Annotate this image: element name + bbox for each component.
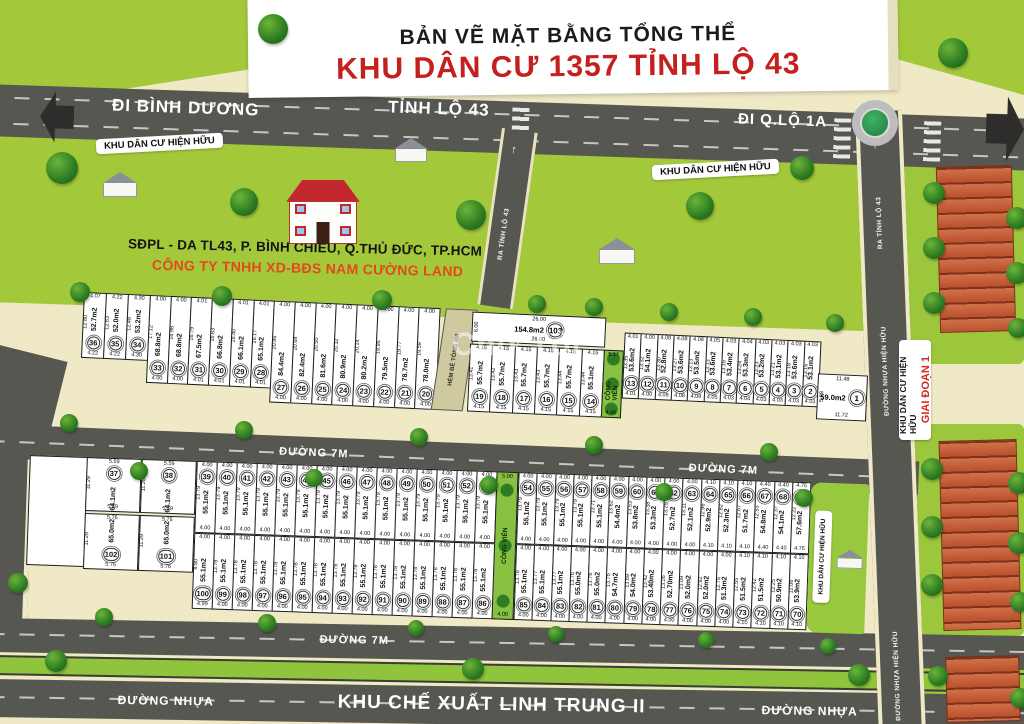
plot-dim-width: 4.00 (335, 540, 354, 546)
plot-dim-width: 4.10 (754, 554, 771, 560)
plot-area: 52.0m2 (703, 576, 711, 600)
plot-area: 55.1m2 (359, 564, 367, 588)
plot-number: 56 (557, 482, 570, 495)
plot-dim-depth: 13.79 (216, 486, 222, 500)
plot-row: 4.0113.3553.6m2134.014.0013.3254.1m2124.… (623, 333, 822, 408)
house-icon (392, 138, 430, 162)
plot-area: 55.1m2 (220, 559, 228, 583)
plot-dim-width: 4.00 (417, 471, 436, 477)
plot-number: 85 (517, 598, 530, 611)
plot-dim-depth: 13.42 (492, 368, 498, 382)
plot-dim-width-bottom: 4.08 (655, 392, 671, 398)
plot-dim-width-bottom: 4.00 (569, 614, 586, 620)
plot-number: 26 (295, 382, 309, 396)
plot-number: 17 (517, 392, 531, 406)
plot-area: 80.2m2 (361, 356, 369, 380)
plot-area: 52.7m2 (669, 506, 677, 530)
plot-number: 54 (521, 481, 534, 494)
plot-dim-width-bottom: 4.00 (333, 606, 352, 612)
plot-area: 53.1m2 (808, 356, 816, 380)
park-strip: 5.17CÔNG VIÊN4.00 (601, 350, 624, 419)
plot-area: 66.8m2 (217, 335, 225, 359)
plot-area: 55.1m2 (442, 498, 450, 522)
plot-area: 55.1m2 (240, 560, 248, 584)
plot-dim-width: 4.00 (611, 477, 628, 483)
park-label: CÔNG VIÊN (501, 527, 509, 564)
plot-dim-width: 4.01 (233, 301, 253, 307)
plot-number: 14 (584, 395, 598, 409)
tree-icon (1010, 592, 1024, 612)
plot-area: 55.0m2 (593, 572, 601, 596)
plot-dim-width: 4.00 (435, 543, 454, 549)
plot-dim-width-bottom: 4.00 (253, 603, 272, 609)
plot-area: 68.8m2 (155, 332, 163, 356)
plot-dim-width: 4.30 (129, 296, 150, 302)
plot-dim-width: 4.00 (574, 476, 591, 482)
plot-dim-depth: 13.79 (416, 493, 422, 507)
plot-area: 53.6m2 (791, 355, 799, 379)
plot-dim-width: 4.00 (437, 471, 456, 477)
plot-dim-width: 4.01 (625, 335, 641, 341)
plot-number: 7 (722, 381, 736, 395)
plot-area: 55.1m2 (339, 563, 347, 587)
plot-area: 55.1m2 (320, 562, 328, 586)
plot-dim-width-bottom: 4.03 (786, 398, 802, 404)
plot-dim-width: 4.00 (455, 544, 474, 550)
tree-icon (1006, 207, 1024, 229)
plot-number: 64 (703, 488, 716, 501)
plot-dim-width-bottom: 4.03 (753, 397, 769, 403)
plot-number: 23 (357, 384, 371, 398)
plot-dim-width-bottom: 4.00 (375, 532, 394, 538)
plot-dim-width-bottom: 4.00 (554, 538, 571, 544)
plot-dim-width-bottom: 4.00 (606, 616, 623, 622)
plot-dim-depth: 13.44 (581, 372, 587, 386)
plot-dim-width: 4.00 (681, 552, 698, 558)
plot-number: 86 (476, 597, 489, 610)
plot-number: 57 (576, 483, 589, 496)
khu-hien-huu-phase: KHU DÂN CƯ HIỆN HỮU (898, 346, 918, 434)
plot-number: 55 (539, 482, 552, 495)
plot-dim-width-bottom: 4.22 (104, 351, 125, 357)
plot-number: 50 (420, 478, 433, 491)
plot-area: 84.4m2 (278, 352, 286, 376)
plot-number: 81 (590, 601, 603, 614)
plot-number: 82 (572, 600, 585, 613)
tree-icon (686, 192, 714, 220)
plot-dim-width: 4.00 (535, 547, 552, 553)
tree-icon (585, 436, 603, 454)
plot-number: 79 (626, 602, 639, 615)
plot-area: 54.1m2 (644, 349, 652, 373)
plot-dim-depth: 11.29 (85, 532, 91, 546)
plot-dim-width-bottom: 4.10 (700, 543, 717, 549)
plot-dim-depth: 13.79 (436, 494, 442, 508)
plot-dim-depth: 13.78 (394, 566, 400, 580)
blank-parcel (26, 455, 88, 567)
plot-number: 63 (685, 487, 698, 500)
tree-icon (660, 303, 678, 321)
plot-dim-width: 4.40 (775, 483, 792, 489)
tree-icon (60, 414, 78, 432)
plot-area: 57.6m2 (796, 511, 804, 535)
plot-number: 37 (107, 467, 120, 480)
plot-number: 13 (624, 377, 638, 391)
road-7m-label-3: ĐƯỜNG 7M (320, 634, 389, 647)
plot-dim-width: 4.01 (192, 299, 212, 305)
plot-dim-width-bottom: 5.76 (84, 562, 137, 569)
tree-icon (95, 608, 113, 626)
plot-number: 38 (162, 469, 175, 482)
plot-area: 65.0m2 (163, 521, 171, 545)
tree-icon (698, 632, 714, 648)
plot-area: 55.1m2 (596, 504, 604, 528)
plot-number: 1 (849, 391, 864, 406)
plot-dim-width-bottom: 5.59 (86, 504, 139, 511)
khu-hien-huu-corner-box: KHU DÂN CƯ HIỆN HỮU (812, 510, 832, 603)
plot-area: 59.0m2 (820, 392, 846, 402)
tree-icon (826, 314, 844, 332)
tree-icon (923, 292, 945, 314)
plot-area: 54.4m2 (614, 504, 622, 528)
plot-dim-depth: 20.68 (294, 337, 300, 351)
crosswalk (833, 118, 851, 159)
plot-number: 39 (200, 470, 213, 483)
plot-dim-width-bottom: 4.00 (335, 530, 354, 536)
tree-icon (921, 574, 943, 596)
plot-number: 28 (254, 366, 268, 380)
tree-icon (1008, 472, 1024, 494)
plot-dim-width: 4.00 (592, 477, 609, 483)
park-dim: 4.00 (493, 611, 513, 618)
plot-area: 52.8m2 (661, 349, 669, 373)
plot-dim-width-bottom: 4.00 (642, 617, 659, 623)
house-icon (596, 238, 638, 264)
plot-dim-width: 4.00 (277, 466, 296, 472)
house-icon (834, 549, 865, 569)
plot-area: 54.1m2 (778, 510, 786, 534)
plot-dim-width-bottom: 4.00 (271, 395, 291, 401)
plot-row: 4.0712.8052.7m2364.224.2212.6352.0m2354.… (82, 292, 151, 361)
plot-number: 60 (630, 485, 643, 498)
plot-dim-width-bottom: 4.01 (209, 378, 229, 384)
plot-area: 55.1m2 (419, 566, 427, 590)
park-dim: 5.17 (605, 352, 623, 359)
plot-cell-101: 5.7611.2965.0m21015.76 (138, 515, 195, 573)
plot-dim-depth: 13.78 (314, 563, 320, 577)
plot-area: 55.7m2 (566, 365, 574, 389)
plot-area: 55.1m2 (342, 495, 350, 519)
plot-area: 79.5m2 (382, 357, 390, 381)
plot-area: 55.7m2 (543, 364, 551, 388)
ra-tinh-lo-43-right: RA TỈNH LỘ 43 (874, 159, 884, 249)
plot-dim-width: 4.10 (738, 482, 755, 488)
park-label: CÔNG VIÊN (605, 367, 620, 401)
tree-icon (585, 298, 603, 316)
tree-icon (760, 443, 778, 461)
plot-number: 102 (103, 548, 120, 562)
plot-dim-width-bottom: 4.10 (770, 621, 787, 627)
plot-number: 99 (216, 588, 229, 601)
plot-dim-depth: 13.78 (214, 560, 220, 574)
plot-dim-width: 4.00 (457, 472, 476, 478)
plot-dim-width-bottom: 4.40 (754, 545, 771, 551)
plot-number: 10 (673, 379, 687, 393)
tree-icon (130, 462, 148, 480)
plot-row: 4.0013.7855.1m2854.004.0013.7755.1m2844.… (514, 544, 808, 630)
plot-number: 15 (562, 394, 576, 408)
plot-area: 52.1m2 (687, 507, 695, 531)
plot-dim-width: 4.00 (717, 553, 734, 559)
plot-area: 55.1m2 (557, 571, 565, 595)
plot-dim-width-bottom: 4.01 (188, 377, 208, 383)
plot-dim-depth: 13.79 (396, 493, 402, 507)
plot-dim-width: 4.10 (790, 556, 807, 562)
title-banner: BẢN VẼ MẶT BẰNG TỔNG THỂ KHU DÂN CƯ 1357… (247, 0, 898, 98)
plot-area: 55.1m2 (422, 498, 430, 522)
plot-dim-depth: 20.32 (335, 338, 341, 352)
plot-dim-width-bottom: 4.00 (590, 539, 607, 545)
plot-area: 53.3m2 (651, 506, 659, 530)
plot-number: 30 (213, 364, 227, 378)
plot-area: 55.0m2 (575, 571, 583, 595)
plot-dim-depth: 12.63 (105, 316, 111, 330)
plot-dim-width-bottom: 4.00 (517, 537, 534, 543)
plot-dim-depth: 13.43 (514, 369, 520, 383)
plot-number: 88 (436, 595, 449, 608)
plot-cell-1: 11.485.0859.0m2111.72 (816, 373, 868, 421)
plot-number: 8 (706, 380, 720, 394)
plot-number: 93 (336, 592, 349, 605)
plot-dim-width-bottom: 4.10 (736, 544, 753, 550)
plot-dim-width: 4.10 (702, 481, 719, 487)
plot-area: 55.1m2 (222, 491, 230, 515)
plot-dim-width-bottom: 4.00 (293, 605, 312, 611)
plot-dim-width-bottom: 4.00 (353, 607, 372, 613)
plot-area: 52.7m2 (90, 308, 98, 332)
plot-area: 52.0m2 (112, 309, 120, 333)
plot-dim-width-bottom: 4.00 (213, 602, 232, 608)
rowhouse-building-bottom (945, 655, 1021, 723)
plot-number: 65 (722, 488, 735, 501)
tree-icon (938, 38, 968, 68)
plot-cell-102: 5.7611.2965.0m21025.76 (83, 513, 140, 571)
plot-dim-width: 4.00 (238, 464, 257, 470)
plot-area: 55.1m2 (439, 567, 447, 591)
plot-dim-width: 4.00 (198, 463, 217, 469)
tree-icon (235, 421, 253, 439)
plot-dim-depth: 20.86 (273, 336, 279, 350)
plot-area: 55.1m2 (588, 366, 596, 390)
plot-area: 55.1m2 (302, 494, 310, 518)
plot-area: 55.7m2 (521, 363, 529, 387)
plot-dim-depth: 13.78 (454, 568, 460, 582)
plot-area: 67.5m2 (196, 334, 204, 358)
plot-area: 55.1m2 (541, 502, 549, 526)
plot-number: 46 (340, 475, 353, 488)
plot-dim-width: 4.00 (645, 551, 662, 557)
plot-area: 66.1m2 (237, 336, 245, 360)
plot-dim-width-bottom: 4.75 (791, 546, 808, 552)
plot-number: 2 (804, 385, 818, 399)
duong-nhua-hien-huu-2: ĐƯỜNG NHỰA HIỆN HỮU (890, 591, 902, 721)
plot-dim-width: 5.59 (143, 461, 196, 468)
plot-number: 87 (456, 596, 469, 609)
plot-area: 55.1m2 (539, 570, 547, 594)
plot-area: 55.1m2 (459, 567, 467, 591)
plot-dim-width-bottom: 4.00 (572, 539, 589, 545)
plot-number: 97 (256, 589, 269, 602)
plot-number: 78 (645, 603, 658, 616)
plot-dim-depth: 13.78 (334, 564, 340, 578)
rowhouse-building-top (936, 165, 1016, 333)
plot-number: 95 (296, 590, 309, 603)
plot-number: 22 (378, 385, 392, 399)
tree-icon (408, 620, 424, 636)
site-plan-map: ĐƯỜNG 7M ĐƯỜNG 7M ĐƯỜNG 7M ĐƯỜNG NHỰA KH… (0, 0, 1024, 724)
plot-dim-width-bottom: 5.76 (139, 563, 192, 570)
plot-dim-width-bottom: 4.00 (533, 613, 550, 619)
plot-area: 80.9m2 (340, 355, 348, 379)
tree-icon (921, 458, 943, 480)
plot-dim-depth: 13.79 (456, 495, 462, 509)
plot-number: 48 (380, 476, 393, 489)
plot-dim-depth: 20.14 (356, 339, 362, 353)
plot-area: 55.1m2 (282, 493, 290, 517)
plot-dim-width-bottom: 4.00 (453, 610, 472, 616)
tree-icon (410, 428, 428, 446)
plot-dim-width-bottom: 4.22 (82, 350, 103, 356)
plot-dim-depth: 16.98 (170, 326, 176, 340)
tree-icon (655, 483, 673, 501)
plot-dim-width-bottom: 4.00 (433, 610, 452, 616)
plot-area: 53.1m2 (775, 355, 783, 379)
plot-area: 55.1m2 (260, 560, 268, 584)
plot-dim-width: 4.00 (684, 480, 701, 486)
plot-dim-width: 4.00 (375, 541, 394, 547)
plot-dim-depth: 11.29 (87, 476, 93, 490)
plot-area: 65.0m2 (108, 519, 116, 543)
plot-area: 54.7m2 (612, 573, 620, 597)
plot-dim-depth: 13.79 (316, 490, 322, 504)
plot-dim-width: 4.00 (235, 536, 254, 542)
plot-number: 9 (690, 380, 704, 394)
plot-dim-width-bottom: 4.00 (333, 398, 353, 404)
tree-icon (795, 489, 813, 507)
tree-icon (921, 516, 943, 538)
plot-number: 73 (736, 606, 749, 619)
plot-dim-depth: 13.79 (336, 491, 342, 505)
plot-dim-width-bottom: 4.00 (395, 401, 415, 407)
plot-dim-width-bottom: 4.00 (233, 603, 252, 609)
plot-dim-depth: 17.12 (149, 325, 155, 339)
plot-dim-width: 4.03 (772, 341, 788, 347)
banner-subtitle: BẢN VẼ MẶT BẰNG TỔNG THỂ (399, 22, 736, 50)
plot-dim-width-bottom: 4.00 (697, 619, 714, 625)
plot-number: 75 (699, 605, 712, 618)
plot-dim-width-bottom: 4.00 (679, 618, 696, 624)
plot-dim-width: 4.00 (316, 305, 336, 311)
plot-dim-width-bottom: 4.01 (251, 380, 271, 386)
plot-dim-width: 4.00 (355, 540, 374, 546)
park-dim: 5.00 (497, 473, 517, 480)
plot-dim-width: 4.00 (337, 305, 357, 311)
plot-area: 55.1m2 (362, 496, 370, 520)
plot-dim-width-bottom: 4.00 (639, 392, 655, 398)
plot-area: 55.1m2 (280, 561, 288, 585)
plot-dim-depth: 19.95 (376, 340, 382, 354)
plot-number: 24 (336, 384, 350, 398)
plot-dim-depth: 13.78 (274, 562, 280, 576)
plot-number: 3 (787, 384, 801, 398)
plot-area: 55.1m2 (322, 494, 330, 518)
plot-area: 53.2m2 (759, 354, 767, 378)
plot-dim-width-bottom: 4.10 (752, 621, 769, 627)
banner-title: KHU DÂN CƯ 1357 TỈNH LỘ 43 (336, 47, 801, 87)
plot-area: 55.1m2 (523, 501, 531, 525)
green-corner: KHU DÂN CƯ HIỆN HỮU (806, 482, 869, 634)
tree-icon (923, 182, 945, 204)
plot-number: 100 (194, 587, 211, 601)
plot-dim-depth: 16.40 (232, 329, 238, 343)
plot-number: 43 (280, 473, 293, 486)
plot-number: 41 (240, 471, 253, 484)
plot-dim-width-bottom: 4.00 (374, 400, 394, 406)
plot-area: 53.6m2 (677, 350, 685, 374)
plot-dim-width-bottom: 4.00 (455, 534, 474, 540)
plot-dim-width: 4.03 (723, 339, 739, 345)
plot-dim-width-bottom: 4.00 (551, 614, 568, 620)
plot-dim-depth: 13.78 (414, 567, 420, 581)
tree-icon (744, 308, 762, 326)
plot-dim-depth: 13.78 (354, 565, 360, 579)
plot-row: 4.0013.7955.1m2394.004.0013.7955.1m2404.… (195, 461, 497, 543)
tree-icon (1008, 318, 1024, 338)
plot-dim-width: 4.10 (720, 481, 737, 487)
plot-number: 90 (396, 594, 409, 607)
plot-dim-width-bottom: 4.00 (413, 609, 432, 615)
tree-icon (305, 469, 323, 487)
tree-icon (258, 614, 276, 632)
plot-dim-width: 4.00 (295, 304, 315, 310)
plot-dim-width: 4.00 (626, 550, 643, 556)
plot-dim-width-bottom: 4.08 (672, 393, 688, 399)
plot-dim-width-bottom: 4.00 (663, 542, 680, 548)
plot-number: 32 (171, 362, 185, 376)
plot-dim-depth: 13.78 (374, 565, 380, 579)
plot-dim-width: 4.40 (756, 482, 773, 488)
plot-area: 55.1m2 (202, 490, 210, 514)
plot-dim-depth: 13.79 (376, 492, 382, 506)
plot-number: 11 (657, 378, 671, 392)
plot-dim-width-bottom: 4.30 (126, 352, 147, 358)
plot-dim-width-bottom: 4.00 (168, 376, 188, 382)
plot-dim-depth: 13.43 (536, 370, 542, 384)
tree-icon (820, 638, 836, 654)
plot-dim-depth: 13.44 (559, 371, 565, 385)
plot-dim-width-bottom: 4.10 (788, 622, 805, 628)
plot-area: 55.1m2 (479, 568, 487, 592)
plot-dim-depth: 13.78 (234, 560, 240, 574)
plot-dim-width-bottom: 4.04 (737, 396, 753, 402)
plot-area: 55.1m2 (462, 499, 470, 523)
plot-area: 55.7m2 (499, 362, 507, 386)
tree-icon (1006, 262, 1024, 284)
plot-dim-width-bottom: 4.00 (435, 534, 454, 540)
plot-number: 76 (681, 604, 694, 617)
tree-icon (212, 286, 232, 306)
plot-area: 53.3m2 (742, 353, 750, 377)
